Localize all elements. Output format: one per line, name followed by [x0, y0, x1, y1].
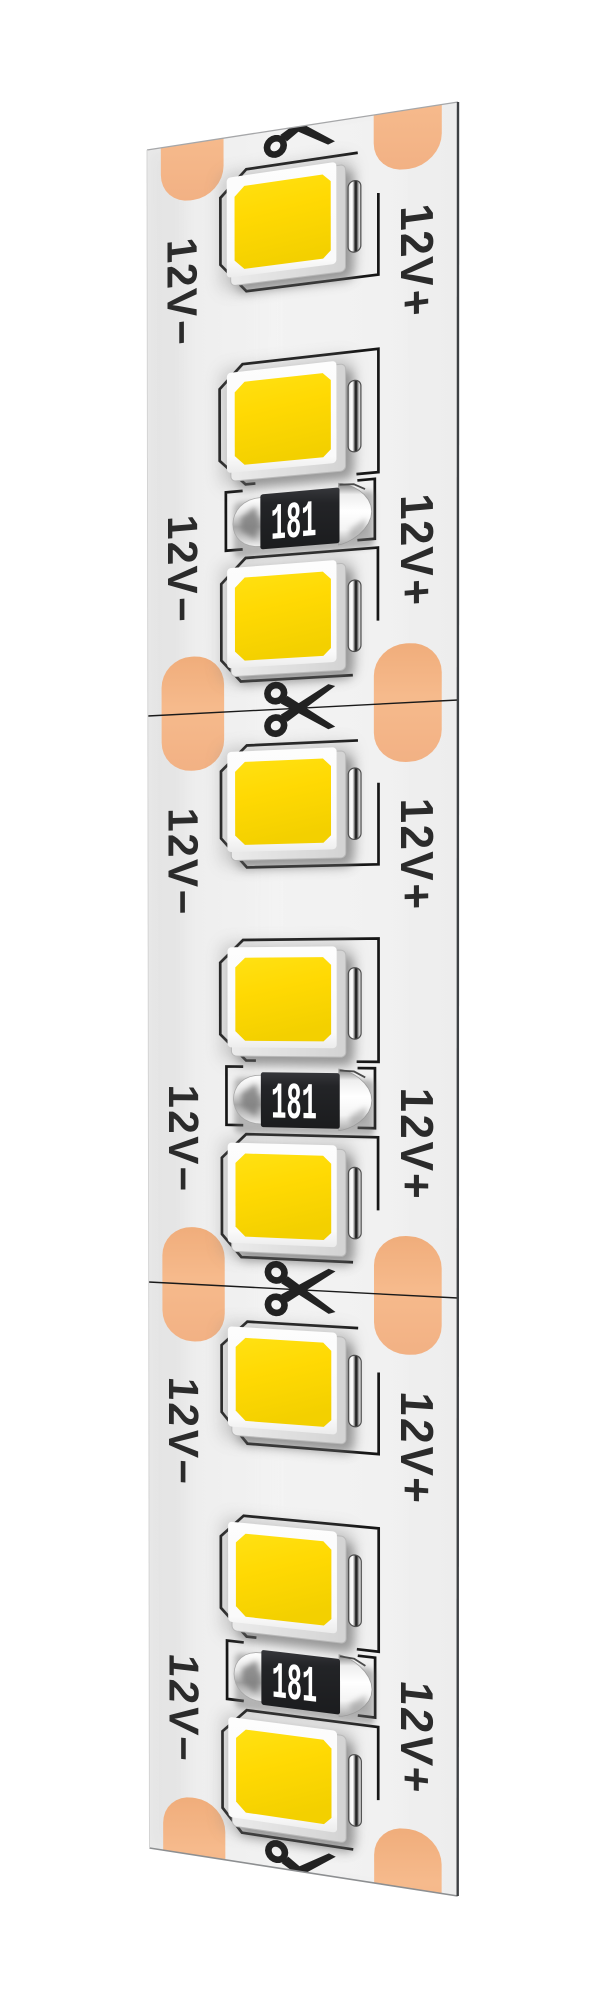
svg-text:12V+: 12V+ — [391, 1678, 443, 1797]
svg-text:12V−: 12V− — [159, 513, 206, 626]
svg-text:12V+: 12V+ — [391, 492, 443, 610]
svg-text:12V−: 12V− — [158, 235, 206, 350]
svg-text:12V−: 12V− — [160, 1376, 207, 1488]
svg-text:12V+: 12V+ — [391, 797, 443, 912]
svg-text:12V−: 12V− — [160, 1084, 207, 1193]
svg-text:12V+: 12V+ — [391, 1087, 443, 1201]
svg-text:12V−: 12V− — [161, 1651, 208, 1765]
svg-text:181: 181 — [272, 1654, 317, 1718]
svg-text:12V+: 12V+ — [391, 1390, 443, 1507]
svg-text:181: 181 — [271, 493, 317, 555]
svg-text:12V−: 12V− — [159, 807, 206, 917]
svg-text:181: 181 — [271, 1076, 317, 1135]
svg-text:12V+: 12V+ — [391, 201, 443, 321]
